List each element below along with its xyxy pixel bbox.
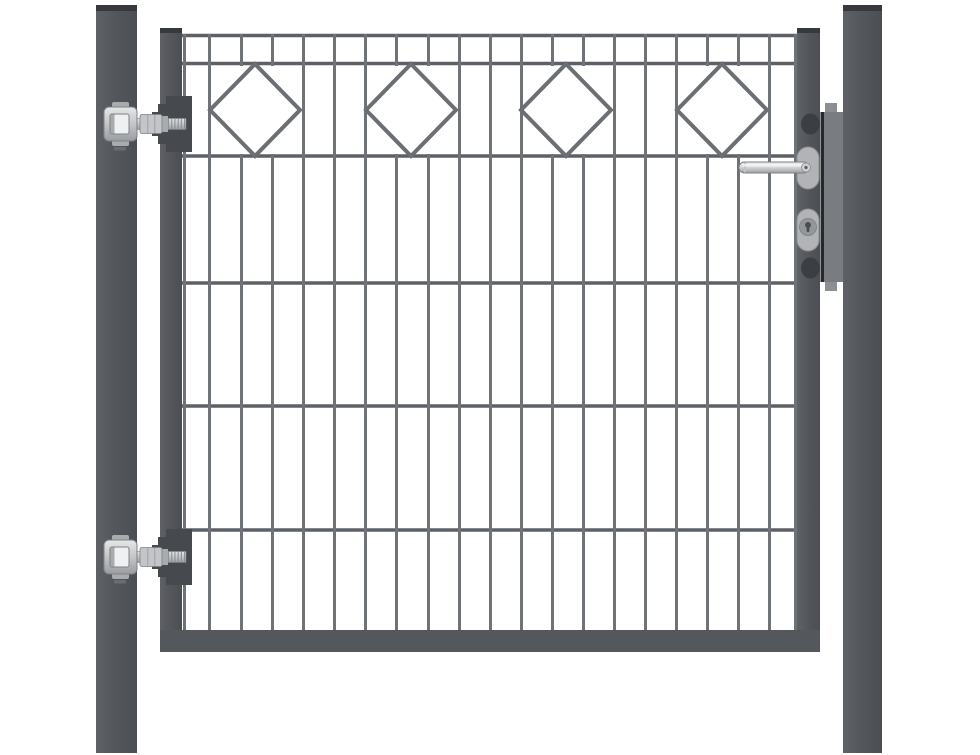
mesh-vertical-bar [240, 34, 243, 66]
mesh-vertical-bars [183, 34, 797, 631]
mesh-vertical-bar [208, 34, 211, 631]
mesh-vertical-bar [613, 34, 616, 631]
hinge-nut-facet [154, 548, 155, 566]
gate-hinge [104, 529, 192, 585]
hinge-nut-facet [147, 115, 148, 133]
mesh-vertical-bar [395, 34, 398, 66]
lock-housing-tab [825, 281, 837, 291]
mesh-vertical-bar [551, 34, 554, 66]
hinge-thread [184, 119, 185, 129]
mesh-vertical-bar [582, 154, 585, 631]
mesh-vertical-bar [427, 34, 430, 66]
hinge-hex-nut [140, 548, 162, 567]
mesh-vertical-bar [737, 154, 740, 631]
hinge-hex-nut [140, 115, 162, 134]
gate-hinge [104, 96, 192, 152]
mesh-vertical-bar [271, 34, 274, 66]
left-post-cap [96, 5, 137, 11]
hinge-thread [171, 552, 172, 562]
right-post-cap [843, 5, 882, 11]
hinge-detail-mark [114, 147, 126, 151]
hinge-thread [184, 552, 185, 562]
handle-pivot-screw [804, 166, 807, 169]
mesh-vertical-bar [706, 154, 709, 631]
mesh-vertical-bar [395, 154, 398, 631]
mesh-vertical-bar [302, 34, 305, 631]
lock-bolt-knob [801, 258, 820, 279]
mesh-vertical-bar [240, 154, 243, 631]
hinge-thread [168, 552, 169, 562]
mesh-vertical-bar [706, 34, 709, 66]
mesh-vertical-bar [737, 34, 740, 66]
hinge-thread [174, 552, 175, 562]
hinge-nut-facet [147, 548, 148, 566]
hinge-thread [181, 552, 182, 562]
mesh-vertical-bar [675, 34, 678, 631]
right-post [843, 5, 882, 753]
mesh-vertical-bar [489, 34, 492, 631]
gate-frame-bottom [160, 630, 820, 652]
mesh-vertical-bar [427, 154, 430, 631]
gate-frame-left-cap [160, 28, 182, 33]
diamond-ornament [677, 64, 767, 156]
mesh-vertical-bar [364, 34, 367, 631]
keyhole-slot [807, 225, 810, 232]
lock-housing-tab [825, 103, 837, 113]
mesh-vertical-bar [582, 34, 585, 66]
hinge-thread [171, 119, 172, 129]
diamond-ornament [210, 64, 300, 156]
diamond-ornaments [210, 64, 767, 156]
hinge-thread [174, 119, 175, 129]
hinge-detail-mark [114, 580, 126, 584]
hinge-thread [178, 119, 179, 129]
door-handle [739, 162, 809, 173]
mesh-vertical-bar [458, 34, 461, 631]
mesh-vertical-bar [644, 34, 647, 631]
hinge-thread [181, 119, 182, 129]
mesh-vertical-bar [333, 34, 336, 631]
mesh-vertical-bar [520, 34, 523, 631]
hinge-bracket-eye-shade [111, 115, 115, 134]
hinge-bracket-eye-shade [111, 548, 115, 567]
door-handle-highlight [742, 164, 804, 167]
hinge-washer [162, 549, 168, 565]
product-image[interactable] [0, 0, 980, 755]
mesh-vertical-bar [271, 154, 274, 631]
mesh-vertical-bar [551, 154, 554, 631]
gate-frame-right-cap [797, 28, 820, 33]
mesh-vertical-bar [768, 34, 771, 631]
diamond-ornament [366, 64, 456, 156]
hinge-nut-facet [154, 115, 155, 133]
hinge-washer [162, 116, 168, 132]
diamond-ornament [521, 64, 611, 156]
lock-strike-plate [821, 112, 825, 282]
mesh-vertical-bar [794, 34, 797, 631]
hinge-thread [178, 552, 179, 562]
lock-bolt-knob [801, 114, 820, 135]
hinge-thread [168, 119, 169, 129]
